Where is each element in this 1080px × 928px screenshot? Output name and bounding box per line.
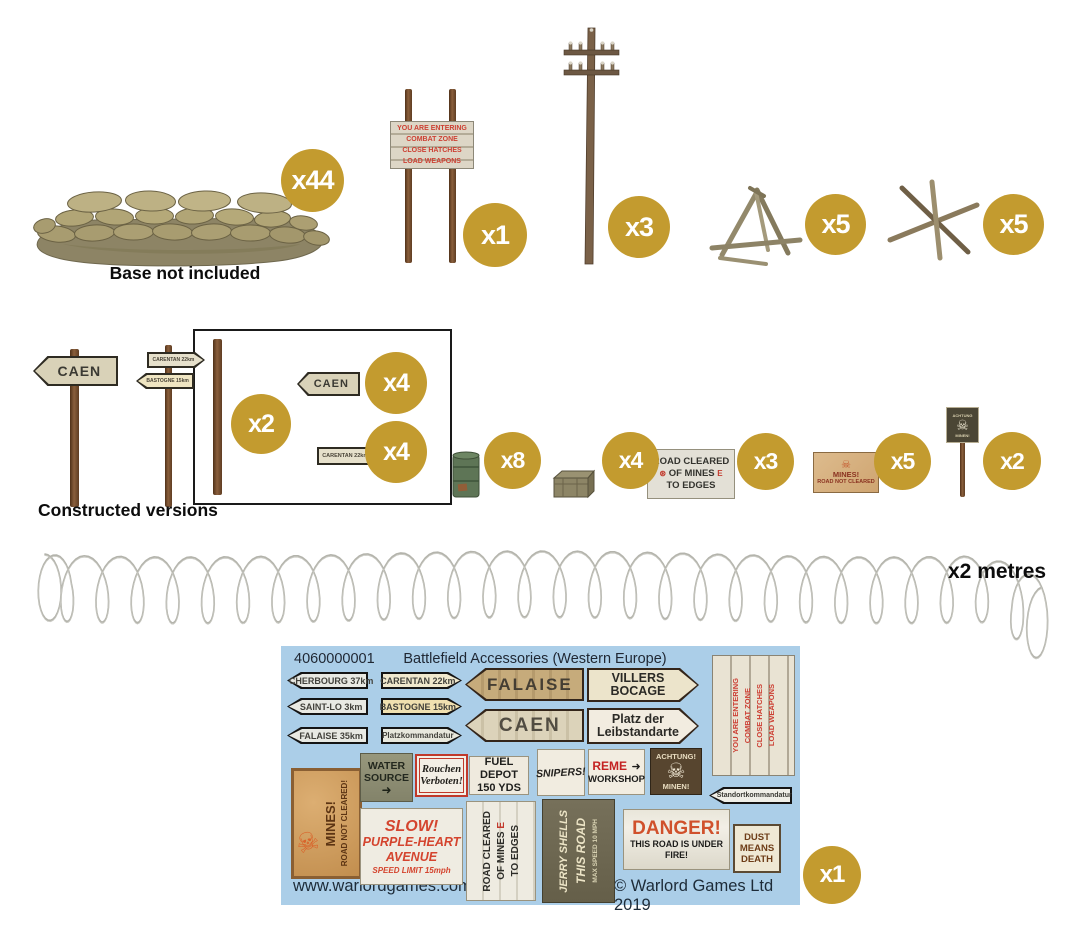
danger-sign: DANGER! THIS ROAD IS UNDER FIRE!: [623, 809, 730, 870]
skull-icon: ☠: [667, 761, 686, 783]
warning-sign-line: COMBAT ZONE: [406, 134, 458, 145]
water-source-sign: WATER SOURCE ➜: [360, 753, 413, 802]
road-cleared-poster: ROAD CLEARED OF MINES E TO EDGES: [466, 801, 536, 901]
arrow-sign-saintlo: SAINT-LO 3km: [287, 698, 368, 715]
arrow-sign-platz-leibstandarte: Platz der Leibstandarte: [587, 708, 699, 744]
crate: [551, 468, 595, 500]
warning-sign-line: LOAD WEAPONS: [403, 156, 461, 167]
road-cleared-qty-badge: x3: [737, 433, 794, 490]
double-signpost-pole: [165, 345, 172, 507]
barbed-wire-coil: [28, 545, 1058, 660]
tripod-obstacle: [700, 178, 808, 268]
mines-sign-qty-badge: x5: [874, 433, 931, 490]
copyright-text: © Warlord Games Ltd 2019: [614, 877, 800, 915]
sheet-qty-badge: x1: [803, 846, 861, 904]
achtung-minen-sign: ACHTUNG! ☠ MINEN!: [650, 748, 702, 795]
arrow-sign-carentan: CARENTAN 22km: [381, 672, 462, 689]
dust-means-death-sign: DUST MEANS DEATH: [733, 824, 781, 873]
warning-sign-qty-badge: x1: [463, 203, 527, 267]
skull-icon: ☠: [841, 460, 851, 470]
product-contents-image: Base not included x44 YOU ARE ENTERING C…: [0, 0, 1080, 928]
double-signpost-top-sign: CARENTAN 22km: [147, 352, 205, 368]
jerry-shells-sign: JERRY SHELLS THIS ROAD MAX SPEED 10 MPH: [542, 799, 615, 903]
double-signpost-bottom-sign: BASTOGNE 15km: [136, 373, 194, 389]
sheet-title: Battlefield Accessories (Western Europe): [385, 651, 685, 667]
sprue-caen-qty-badge: x4: [365, 352, 427, 414]
hedgehog-obstacle: [885, 178, 985, 263]
slow-purple-heart-sign: SLOW! PURPLE-HEART AVENUE SPEED LIMIT 15…: [360, 808, 463, 885]
sheet-code: 4060000001: [294, 651, 375, 667]
arrow-sign-platzkommandatur: Platzkommandatur: [381, 727, 462, 744]
arrow-right-icon: ➜: [381, 784, 391, 796]
oil-drum: [451, 451, 481, 499]
sprue-caen-sign: CAEN: [297, 372, 360, 396]
warning-sign-line: CLOSE HATCHES: [402, 145, 461, 156]
combat-zone-sign: YOU ARE ENTERING COMBAT ZONE CLOSE HATCH…: [712, 655, 795, 776]
arrow-sign-falaise35: FALAISE 35km: [287, 727, 368, 744]
reme-workshop-sign: REME ➜ WORKSHOP: [588, 749, 645, 795]
minefield-marker-pole: [960, 438, 965, 497]
arrow-sign-caen-big: CAEN: [465, 709, 584, 742]
arrow-right-icon: ➜: [631, 761, 640, 773]
arrow-sign-bastogne: BASTOGNE 15km: [381, 698, 462, 715]
sandbags-qty-badge: x44: [281, 149, 344, 212]
sandbags-caption: Base not included: [100, 263, 270, 284]
crate-qty-badge: x4: [602, 432, 659, 489]
snipers-sign: SNIPERS!: [537, 749, 585, 796]
oil-drum-qty-badge: x8: [484, 432, 541, 489]
wire-length-label: x2 metres: [948, 560, 1046, 584]
warning-sign-line: YOU ARE ENTERING: [397, 123, 467, 134]
warning-sign-board: YOU ARE ENTERING COMBAT ZONE CLOSE HATCH…: [390, 121, 474, 169]
minefield-marker-sign: ACHTUNG ☠ MINEN!: [946, 407, 979, 443]
arrow-sign-falaise-big: FALAISE: [465, 668, 584, 701]
telegraph-pole-qty-badge: x3: [608, 196, 670, 258]
skull-icon: ☠: [956, 418, 969, 433]
arrow-sign-villers-bocage: VILLERS BOCAGE: [587, 668, 699, 702]
mines-poster: ☠ MINES! ROAD NOT CLEARED!: [291, 768, 362, 879]
mines-sign: ☠ MINES! ROAD NOT CLEARED: [813, 452, 879, 493]
fuel-depot-sign: FUEL DEPOT 150 YDS: [469, 756, 529, 795]
warning-sign-post-left: [405, 89, 412, 263]
sprue-carentan-qty-badge: x4: [365, 421, 427, 483]
rauchen-verboten-sign: Rouchen Verboten!: [415, 754, 468, 797]
minefield-marker-qty-badge: x2: [983, 432, 1041, 490]
sprue-pole-qty-badge: x2: [231, 394, 291, 454]
constructed-versions-caption: Constructed versions: [38, 500, 218, 521]
skull-icon: ☠: [292, 824, 324, 861]
road-cleared-sign: ROAD CLEARED ⊛ OF MINES E TO EDGES: [647, 449, 735, 499]
arrow-sign-cherbourg: CHERBOURG 37km: [287, 672, 368, 689]
sprue-pole: [213, 339, 222, 495]
arrow-sign-standortkommandatur: Standortkommandatur: [709, 787, 792, 804]
tripod-qty-badge: x5: [805, 194, 866, 255]
warning-sign-post-right: [449, 89, 456, 263]
decal-sheet: 4060000001 Battlefield Accessories (West…: [281, 646, 800, 905]
hedgehog-qty-badge: x5: [983, 194, 1044, 255]
caen-signpost-sign: CAEN: [33, 356, 118, 386]
